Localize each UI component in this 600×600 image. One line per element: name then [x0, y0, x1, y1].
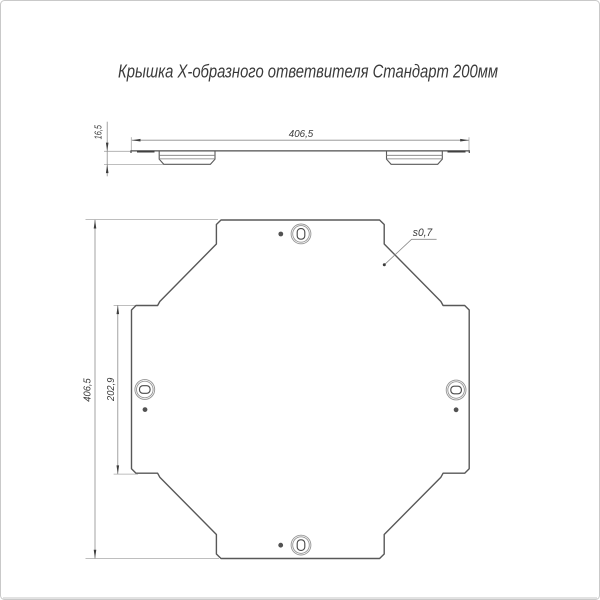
svg-text:202,9: 202,9 [106, 377, 117, 402]
svg-text:16,5: 16,5 [94, 125, 105, 140]
svg-text:s0,7: s0,7 [413, 227, 433, 239]
svg-text:Крышка Х-образного ответвителя: Крышка Х-образного ответвителя Стандарт … [118, 61, 498, 82]
svg-text:406,5: 406,5 [289, 129, 314, 140]
svg-text:406,5: 406,5 [82, 378, 93, 402]
